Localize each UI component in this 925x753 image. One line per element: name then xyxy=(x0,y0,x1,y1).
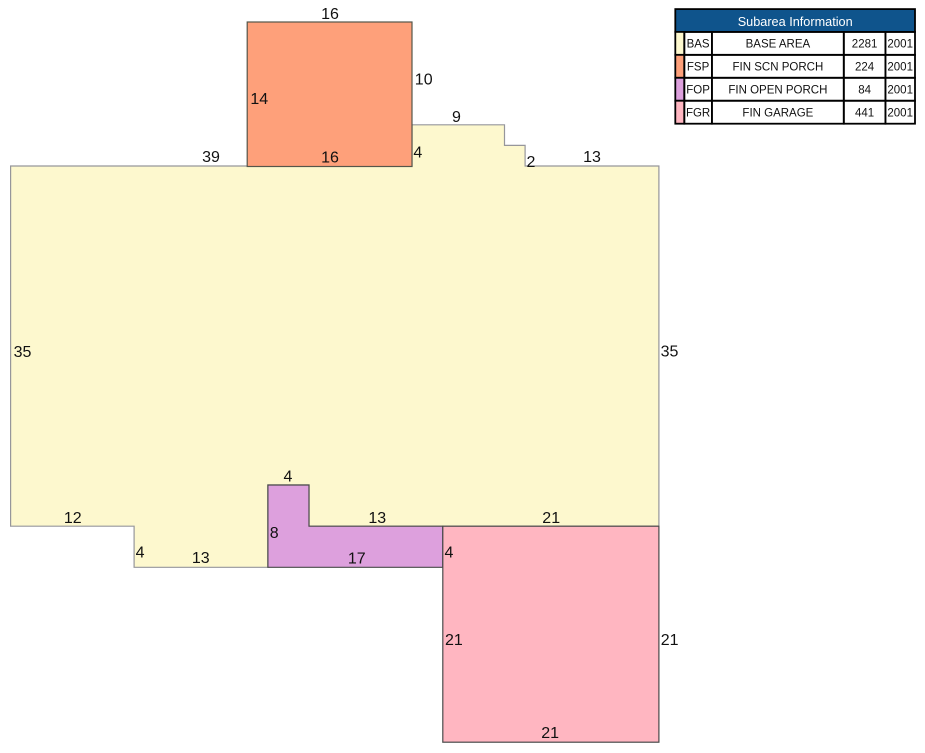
svg-text:16: 16 xyxy=(321,150,339,167)
svg-text:39: 39 xyxy=(202,149,220,166)
svg-text:21: 21 xyxy=(661,632,679,649)
svg-text:4: 4 xyxy=(413,145,422,162)
svg-text:13: 13 xyxy=(368,510,386,527)
svg-text:35: 35 xyxy=(14,344,32,361)
svg-text:13: 13 xyxy=(583,149,601,166)
svg-text:FIN OPEN PORCH: FIN OPEN PORCH xyxy=(728,85,827,97)
svg-text:441: 441 xyxy=(855,108,874,120)
svg-text:13: 13 xyxy=(192,550,210,567)
svg-text:10: 10 xyxy=(415,71,433,88)
svg-text:2001: 2001 xyxy=(887,62,913,74)
svg-text:12: 12 xyxy=(64,510,82,527)
svg-text:8: 8 xyxy=(270,525,279,542)
svg-text:16: 16 xyxy=(321,6,339,23)
svg-text:FGR: FGR xyxy=(686,108,710,120)
svg-text:4: 4 xyxy=(136,544,145,561)
svg-text:2001: 2001 xyxy=(887,108,913,120)
svg-text:224: 224 xyxy=(855,62,875,74)
svg-text:4: 4 xyxy=(445,545,454,562)
svg-text:21: 21 xyxy=(541,725,559,742)
svg-text:BASE AREA: BASE AREA xyxy=(746,39,811,51)
svg-text:FSP: FSP xyxy=(687,62,710,74)
svg-text:FIN GARAGE: FIN GARAGE xyxy=(742,108,813,120)
svg-text:FIN SCN PORCH: FIN SCN PORCH xyxy=(733,62,824,74)
svg-text:4: 4 xyxy=(283,469,292,486)
svg-text:Subarea Information: Subarea Information xyxy=(738,15,853,29)
svg-text:FOP: FOP xyxy=(686,85,710,97)
svg-text:14: 14 xyxy=(250,91,268,108)
svg-text:BAS: BAS xyxy=(687,39,710,51)
svg-text:17: 17 xyxy=(348,551,366,568)
svg-text:35: 35 xyxy=(661,344,679,361)
svg-text:2001: 2001 xyxy=(887,85,913,97)
svg-text:2001: 2001 xyxy=(887,39,913,51)
svg-text:2281: 2281 xyxy=(852,39,878,51)
svg-text:2: 2 xyxy=(526,154,535,171)
svg-text:84: 84 xyxy=(858,85,871,97)
svg-text:21: 21 xyxy=(542,510,560,527)
svg-text:9: 9 xyxy=(452,109,461,126)
svg-text:21: 21 xyxy=(445,632,463,649)
